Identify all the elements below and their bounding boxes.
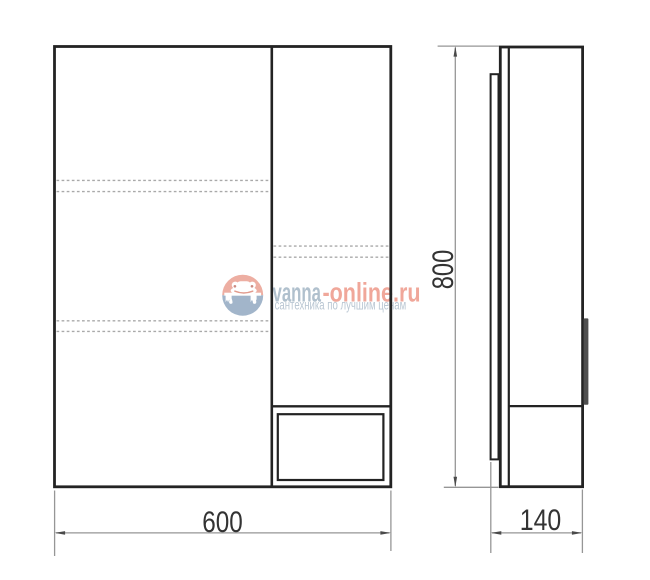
- svg-text:140: 140: [520, 504, 562, 537]
- svg-text:800: 800: [427, 250, 460, 290]
- svg-text:600: 600: [202, 506, 243, 539]
- svg-text:сантехника по лучшим ценам: сантехника по лучшим ценам: [275, 298, 407, 313]
